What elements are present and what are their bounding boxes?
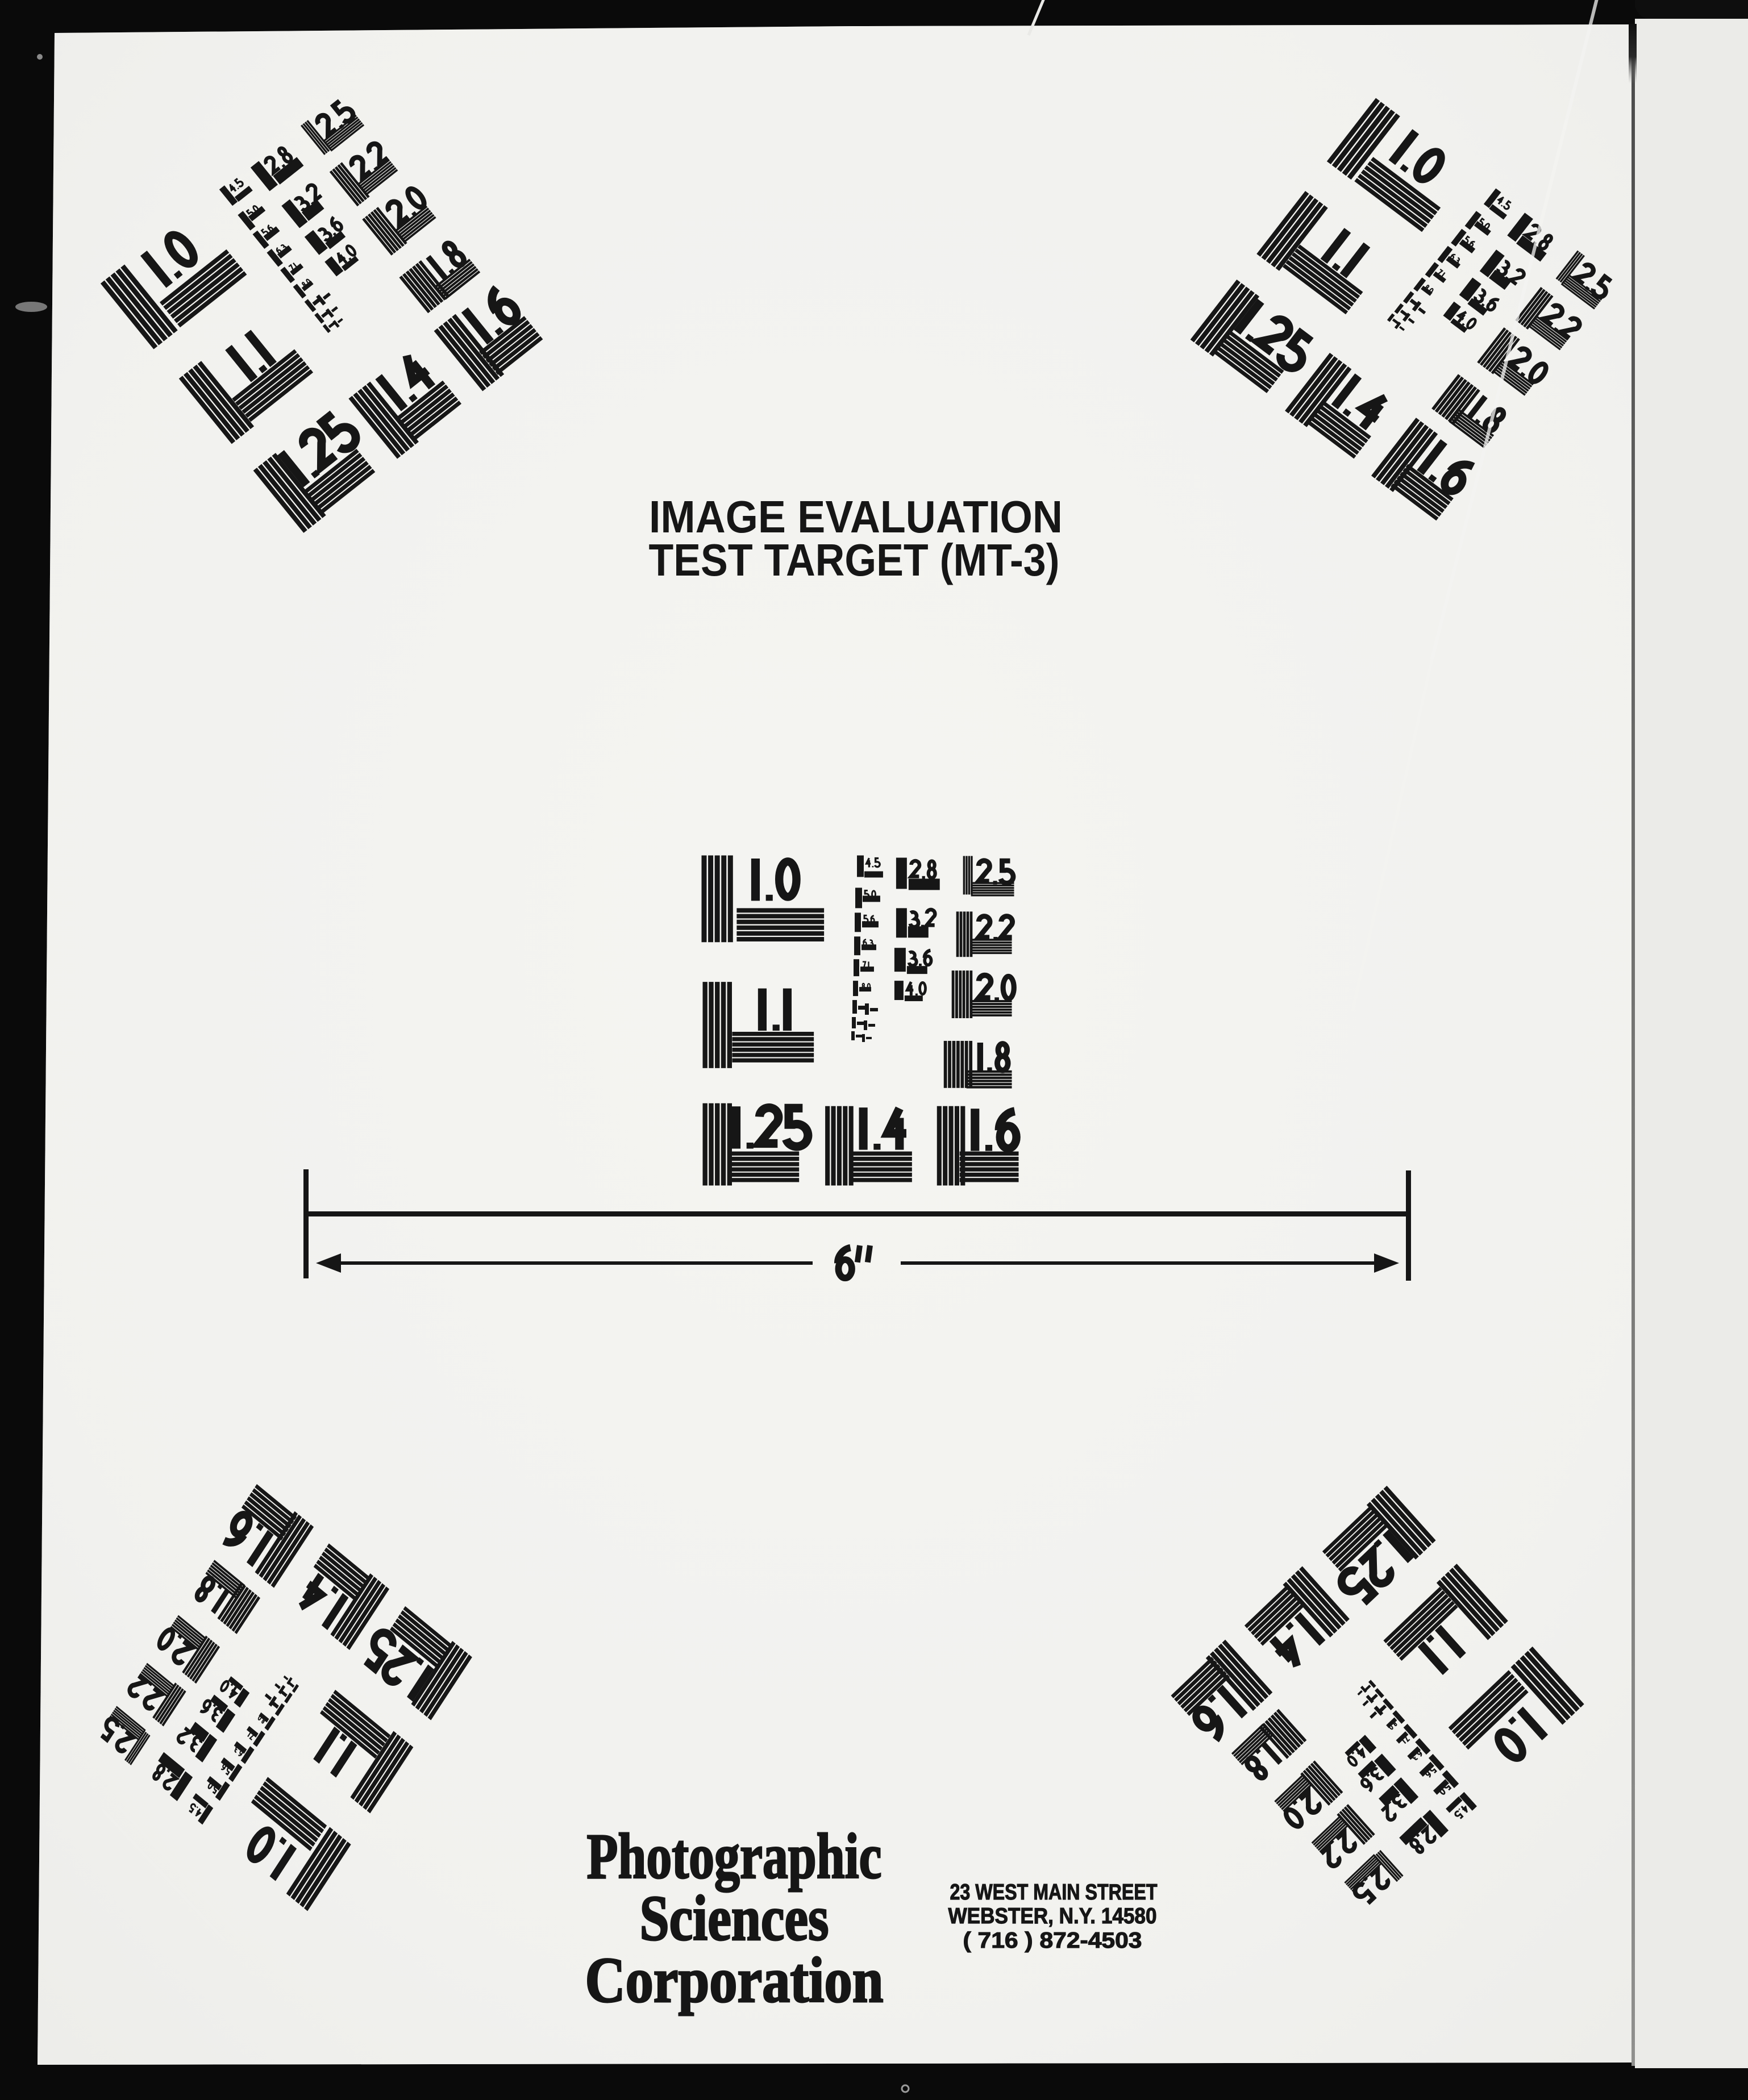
svg-text:TEST TARGET (MT-3): TEST TARGET (MT-3) [649, 535, 1060, 585]
svg-text:( 716 ) 872-4503: ( 716 ) 872-4503 [963, 1928, 1142, 1953]
svg-text:Sciences: Sciences [640, 1883, 829, 1954]
svg-text:23 WEST MAIN STREET: 23 WEST MAIN STREET [950, 1880, 1158, 1905]
svg-text:WEBSTER, N.Y. 14580: WEBSTER, N.Y. 14580 [948, 1904, 1157, 1928]
svg-text:Corporation: Corporation [585, 1945, 884, 2016]
svg-text:Photographic: Photographic [587, 1821, 882, 1892]
